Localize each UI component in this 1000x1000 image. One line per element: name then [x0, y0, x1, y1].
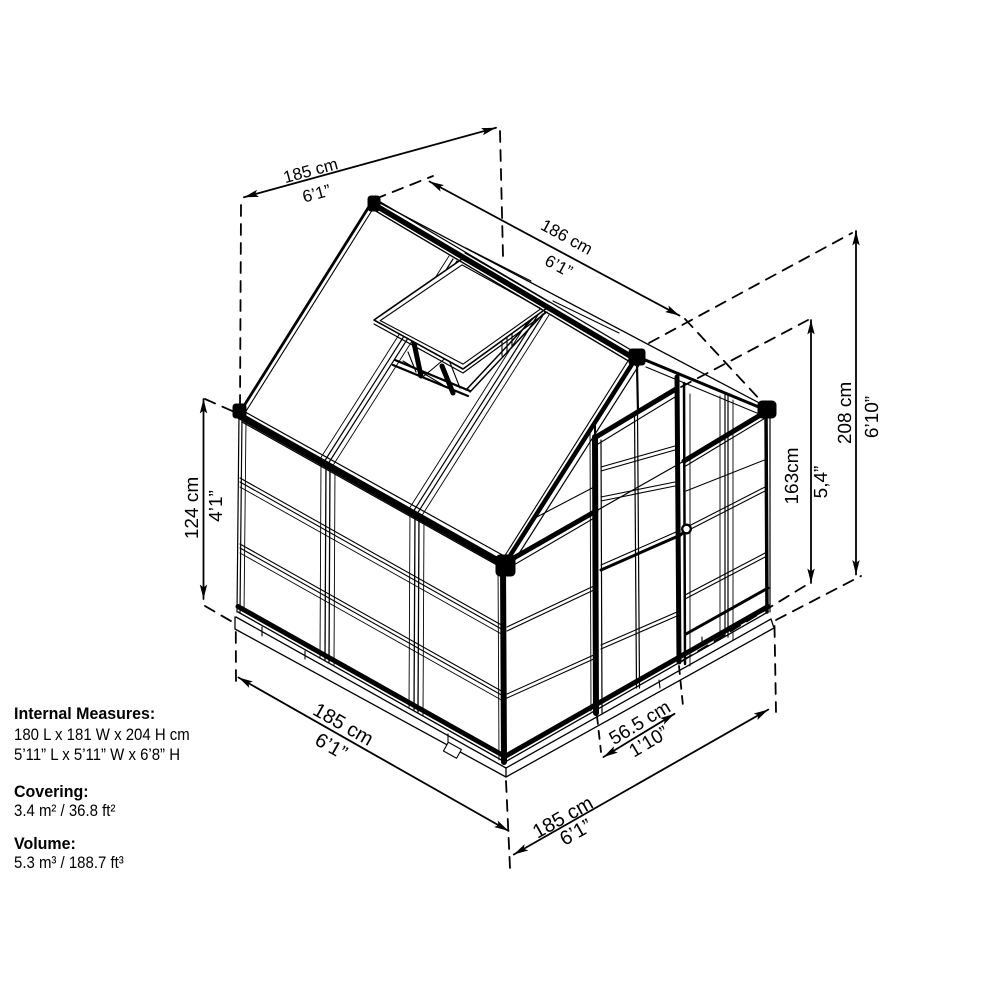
svg-text:6’1”: 6’1” — [300, 181, 333, 207]
svg-text:124 cm: 124 cm — [182, 477, 203, 539]
svg-text:186 cm: 186 cm — [538, 216, 596, 259]
svg-text:4’1”: 4’1” — [206, 490, 227, 522]
svg-text:6’10”: 6’10” — [862, 396, 883, 438]
svg-text:5,4”: 5,4” — [811, 466, 832, 499]
svg-text:208 cm: 208 cm — [835, 382, 856, 444]
svg-text:163cm: 163cm — [782, 447, 803, 504]
svg-text:6’1”: 6’1” — [542, 251, 576, 281]
svg-text:185 cm: 185 cm — [281, 154, 340, 187]
